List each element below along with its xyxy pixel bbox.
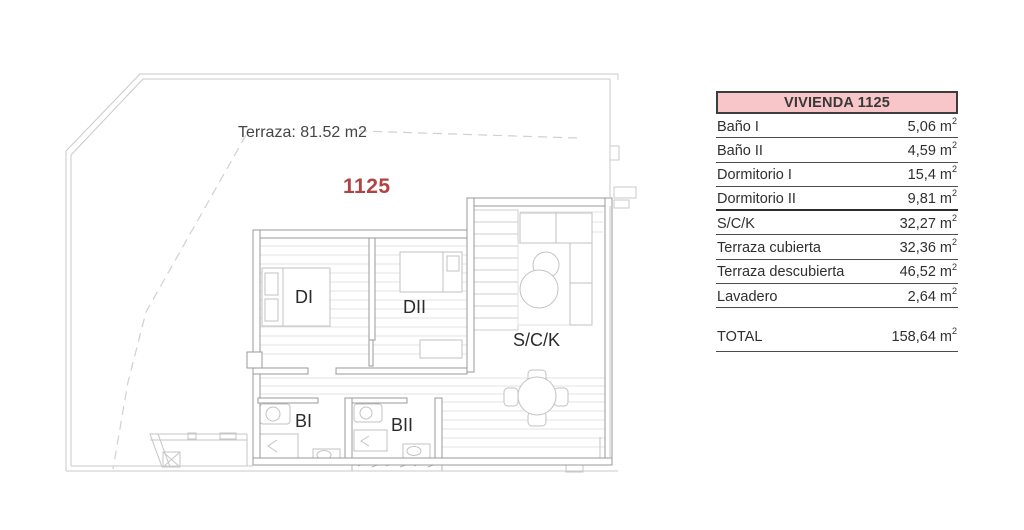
total-label: TOTAL xyxy=(717,329,762,345)
coffee-table-icon xyxy=(520,270,558,308)
table-row-bano-1: Baño I 5,06m2 xyxy=(716,114,958,138)
floorplan-sheet: Terraza: 81.52 m2 1125 DI DII S/C/K BI B… xyxy=(0,0,1024,530)
room-area: 32,27m2 xyxy=(900,216,957,232)
room-area: 46,52m2 xyxy=(900,264,957,280)
kitchen-counter xyxy=(474,210,518,330)
table-row-lavadero: Lavadero 2,64m2 xyxy=(716,284,958,308)
room-area: 4,59m2 xyxy=(908,143,957,159)
room-name: Terraza cubierta xyxy=(717,240,821,256)
area-table: VIVIENDA 1125 Baño I 5,06m2 Baño II 4,59… xyxy=(716,91,958,352)
room-area: 5,06m2 xyxy=(908,119,957,135)
terrace-area-label: Terraza: 81.52 m2 xyxy=(238,124,367,141)
table-row-terraza-descubierta: Terraza descubierta 46,52m2 xyxy=(716,260,958,284)
room-label-di: DI xyxy=(295,287,313,307)
desk-dii-icon xyxy=(420,340,462,358)
table-title-text: VIVIENDA 1125 xyxy=(784,95,890,111)
room-area: 2,64m2 xyxy=(908,289,957,305)
room-name: Dormitorio I xyxy=(717,167,792,183)
table-title: VIVIENDA 1125 xyxy=(716,91,958,114)
room-name: Lavadero xyxy=(717,289,777,305)
bed-dii-icon xyxy=(400,252,462,292)
room-name: S/C/K xyxy=(717,216,755,232)
table-row-total: TOTAL 158,64m2 xyxy=(716,325,958,352)
room-label-bi: BI xyxy=(295,411,312,431)
table-row-bano-2: Baño II 4,59m2 xyxy=(716,138,958,162)
table-row-terraza-cubierta: Terraza cubierta 32,36m2 xyxy=(716,235,958,259)
room-name: Dormitorio II xyxy=(717,191,796,207)
room-area: 9,81m2 xyxy=(908,191,957,207)
room-name: Baño II xyxy=(717,143,763,159)
room-label-sck: S/C/K xyxy=(513,330,560,350)
room-name: Terraza descubierta xyxy=(717,264,844,280)
room-label-bii: BII xyxy=(391,415,413,435)
table-row-dormitorio-1: Dormitorio I 15,4m2 xyxy=(716,163,958,187)
room-area: 32,36m2 xyxy=(900,240,957,256)
floor-plan-drawing: Terraza: 81.52 m2 1125 DI DII S/C/K BI B… xyxy=(0,0,690,530)
room-name: Baño I xyxy=(717,119,759,135)
room-area: 15,4m2 xyxy=(908,167,957,183)
table-row-sck: S/C/K 32,27m2 xyxy=(716,211,958,235)
table-row-dormitorio-2: Dormitorio II 9,81m2 xyxy=(716,187,958,211)
unit-number-label: 1125 xyxy=(343,175,391,198)
room-label-dii: DII xyxy=(403,297,426,317)
total-area: 158,64m2 xyxy=(892,329,957,345)
